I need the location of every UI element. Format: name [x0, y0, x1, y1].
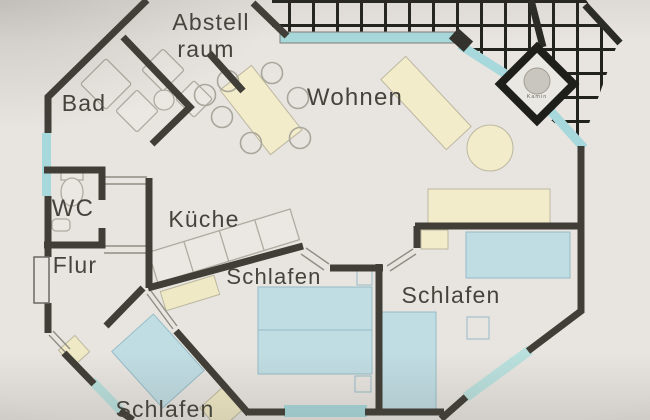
nightstand — [467, 317, 489, 339]
fireplace-flue — [524, 68, 550, 94]
bath-sink — [154, 90, 174, 110]
coffee-table — [467, 125, 513, 171]
room-label-abstellraum-1: Abstell — [172, 9, 249, 35]
room-label-kueche: Küche — [168, 206, 239, 232]
fireplace-label: Kamin — [527, 94, 548, 100]
room-label-bad: Bad — [62, 90, 107, 116]
window-south — [284, 405, 367, 417]
room-label-wc: WC — [52, 195, 94, 222]
wardrobe — [382, 312, 436, 411]
room-label-abstellraum-2: raum — [177, 36, 234, 62]
floor-plan-photo: Kamin Abstell raum Bad WC Flur Küche Woh… — [0, 0, 650, 420]
entrance-door — [34, 257, 49, 303]
room-label-schlafen-rechts: Schlafen — [401, 282, 500, 308]
window-band-north — [280, 32, 458, 43]
room-label-wohnen: Wohnen — [307, 84, 403, 111]
bed-right — [466, 232, 570, 278]
room-label-flur: Flur — [53, 252, 97, 278]
bedroom-chair — [421, 230, 448, 249]
nightstand — [355, 376, 371, 392]
nightstand — [357, 270, 372, 285]
sofa-long — [428, 189, 550, 223]
floor-plan: Kamin Abstell raum Bad WC Flur Küche Woh… — [0, 0, 650, 420]
room-label-schlafen-unten: Schlafen — [115, 396, 214, 420]
window-west — [42, 133, 51, 196]
room-label-schlafen-mitte: Schlafen — [226, 264, 321, 289]
